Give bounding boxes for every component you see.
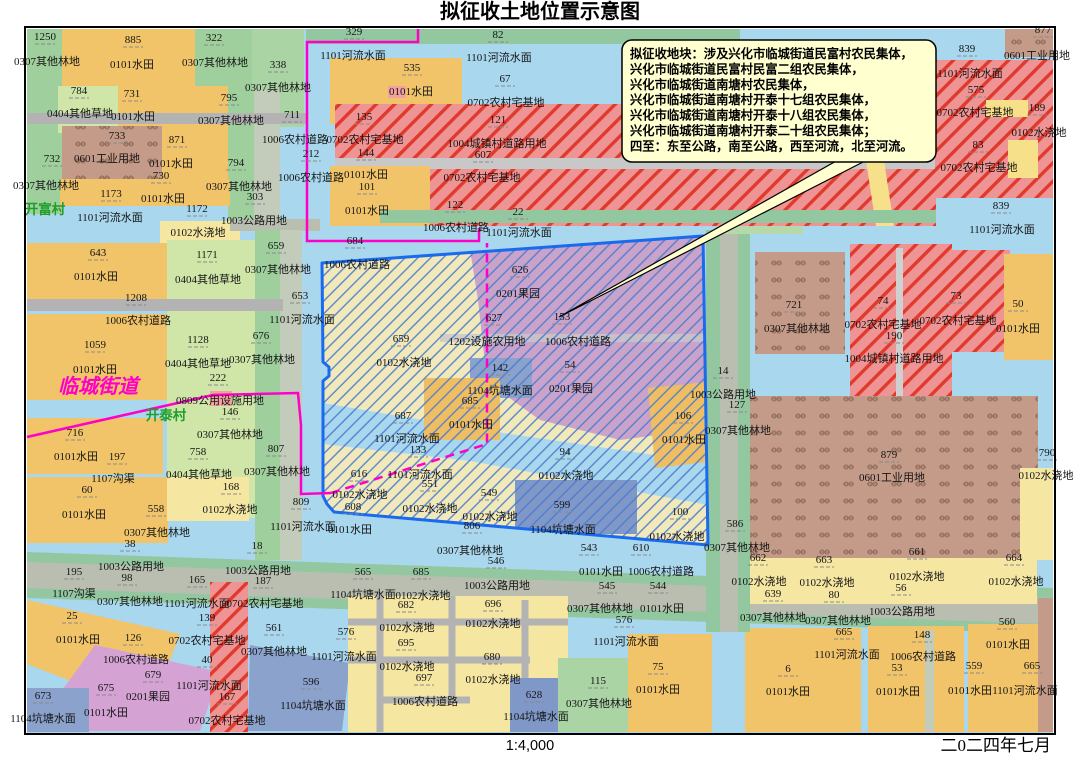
parcel-number-label: 790 [1039, 447, 1056, 459]
parcel-number-label: 559 [966, 660, 983, 672]
land-use-label: 0307其他林地 [182, 55, 248, 69]
land-use-label: 1006农村道路 [890, 649, 956, 663]
parcel-number-label: 610 [633, 542, 650, 554]
parcel-number-label: 676 [253, 330, 270, 342]
land-use-label: 0101水田 [389, 85, 433, 98]
parcel-number-label: 83 [973, 139, 985, 151]
land-use-label: 1003公路用地 [464, 579, 530, 592]
parcel-number-label: 561 [266, 622, 283, 634]
land-use-label: 1101河流水面 [374, 431, 440, 445]
parcel-number-label: 53 [892, 662, 904, 674]
parcel-number-label: 679 [145, 669, 162, 681]
land-use-label: 0307其他林地 [13, 178, 79, 192]
parcel-number-label: 144 [358, 147, 375, 159]
land-use-label: 0101水田 [766, 685, 810, 698]
land-acquisition-map: 12500307其他林地8850101水田3220307其他林地3380307其… [0, 0, 1080, 759]
land-use-label: 0702农村宅基地 [468, 95, 545, 109]
parcel-number-label: 303 [247, 191, 264, 203]
land-use-label: 0404其他草地 [165, 357, 231, 370]
parcel-number-label: 794 [228, 157, 245, 169]
land-use-label: 1101河流水面 [311, 649, 377, 663]
parcel-number-label: 50 [1013, 298, 1025, 310]
parcel-number-label: 25 [67, 610, 79, 622]
parcel-number-label: 1250 [34, 31, 57, 43]
parcel-number-label: 879 [881, 449, 898, 461]
land-use-label: 1101河流水面 [77, 210, 143, 224]
callout-line: 兴化市临城街道南塘村开泰十八组农民集体， [630, 108, 876, 123]
land-use-label: 0702农村宅基地 [920, 313, 997, 327]
parcel-number-label: 639 [765, 588, 782, 600]
parcel-number-label: 627 [486, 312, 503, 324]
parcel-number-label: 74 [878, 295, 890, 307]
callout-line: 兴化市临城街道南塘村开泰十七组农民集体， [630, 92, 876, 107]
land-use-label: 0404其他草地 [47, 107, 113, 120]
land-use-label: 0404其他草地 [166, 468, 232, 481]
land-use-label: 0102水浇地 [377, 356, 432, 369]
land-use-label: 0101水田 [345, 204, 389, 217]
parcel-number-label: 75 [653, 661, 665, 673]
land-use-label: 0307其他林地 [567, 601, 633, 615]
parcel-number-label: 673 [35, 690, 52, 702]
parcel-number-label: 54 [565, 359, 577, 371]
parcel-number-label: 22 [513, 206, 524, 218]
parcel-number-label: 675 [98, 682, 115, 694]
land-use-label: 0102水浇地 [466, 673, 521, 686]
parcel-number-label: 664 [1006, 552, 1023, 564]
land-use-label: 0102水浇地 [800, 576, 855, 589]
land-use-label: 1101河流水面 [486, 225, 552, 239]
parcel-number-label: 135 [356, 111, 373, 123]
land-use-label: 0702农村宅基地 [227, 596, 304, 610]
parcel-number-label: 126 [125, 632, 142, 644]
land-use-label: 0102水浇地 [989, 575, 1044, 588]
parcel-number-label: 795 [221, 92, 238, 104]
parcel-number-label: 14 [718, 365, 730, 377]
parcel-number-label: 338 [270, 59, 287, 71]
land-use-label: 0307其他林地 [97, 594, 163, 608]
parcel-number-label: 187 [255, 575, 272, 587]
land-use-label: 1101河流水面 [466, 50, 532, 64]
parcel-number-label: 730 [153, 170, 170, 182]
parcel-number-label: 1172 [186, 203, 208, 215]
parcel-number-label: 127 [729, 399, 746, 411]
land-use-label: 0102水浇地 [403, 502, 458, 515]
parcel-number-label: 659 [268, 240, 285, 252]
parcel-number-label: 685 [413, 566, 430, 578]
parcel-number-label: 626 [512, 264, 529, 276]
land-use-label: 0601工业用地 [74, 152, 140, 165]
land-use-label: 1101河流水面 [992, 683, 1058, 697]
land-use-label: 0101水田 [110, 58, 154, 71]
parcel-number-label: 106 [675, 410, 692, 422]
land-use-label: 0307其他林地 [705, 423, 771, 437]
land-use-label: 1104坑塘水面 [530, 522, 596, 536]
callout-line: 兴化市临城街道南塘村农民集体， [630, 77, 814, 92]
land-use-label: 1006农村道路 [262, 132, 328, 146]
parcel-number-label: 576 [338, 626, 355, 638]
land-use-label: 1101河流水面 [164, 596, 230, 610]
land-use-label: 0201果园 [126, 690, 170, 703]
parcel-number-label: 643 [90, 247, 107, 259]
parcel-number-label: 784 [71, 85, 88, 97]
parcel-number-label: 665 [836, 626, 853, 638]
land-use-label: 0101水田 [449, 418, 493, 431]
land-use-label: 1104坑塘水面 [280, 698, 346, 712]
parcel-number-label: 663 [816, 554, 833, 566]
land-use-label: 0101水田 [948, 684, 992, 697]
parcel-number-label: 607 [475, 149, 492, 161]
parcel-number-label: 38 [125, 538, 137, 550]
land-use-label: 0702农村宅基地 [327, 132, 404, 146]
land-use-label: 1004城镇村道路用地 [448, 136, 547, 150]
land-use-label: 1003公路用地 [690, 388, 756, 401]
land-use-label: 0702农村宅基地 [845, 317, 922, 331]
parcel-number-label: 543 [581, 542, 598, 554]
parcel-number-label: 809 [293, 496, 310, 508]
land-use-label: 1006农村道路 [278, 170, 344, 184]
parcel-number-label: 67 [500, 73, 512, 85]
land-use-label: 0102水浇地 [333, 488, 388, 501]
parcel-number-label: 807 [268, 443, 285, 455]
land-use-label: 1101河流水面 [593, 634, 659, 648]
parcel-number-label: 1128 [187, 334, 209, 346]
parcel-number-label: 685 [462, 395, 479, 407]
land-use-label: 0307其他林地 [245, 80, 311, 94]
parcel-number-label: 115 [590, 675, 607, 687]
land-use-label: 1101河流水面 [969, 222, 1035, 236]
land-use-label: 0102水浇地 [1019, 469, 1074, 482]
parcel-number-label: 596 [303, 676, 320, 688]
parcel-number-label: 575 [968, 84, 985, 96]
land-use-label: 1104坑塘水面 [330, 587, 396, 601]
land-use-label: 1004城镇村道路用地 [845, 351, 944, 365]
parcel-number-label: 133 [410, 444, 427, 456]
parcel-number-label: 716 [67, 427, 84, 439]
land-use-label: 0102水浇地 [380, 621, 435, 634]
village-label: 开泰村 [146, 407, 187, 423]
parcel-number-label: 680 [484, 651, 501, 663]
land-use-label: 0101水田 [876, 685, 920, 698]
land-use-label: 0101水田 [73, 363, 117, 376]
land-use-label: 0101水田 [62, 508, 106, 521]
land-use-label: 0601工业用地 [859, 471, 925, 484]
callout-line: 兴化市临城街道南塘村开泰二十组农民集体； [630, 123, 876, 138]
land-use-label: 0702农村宅基地 [189, 713, 266, 727]
land-use-label: 0702农村宅基地 [169, 633, 246, 647]
parcel-number-label: 586 [727, 518, 744, 530]
parcel-number-label: 165 [189, 574, 206, 586]
land-use-label: 0307其他林地 [764, 321, 830, 335]
parcel-number-label: 222 [210, 372, 227, 384]
land-use-label: 1003公路用地 [869, 605, 935, 618]
land-use-label: 1101河流水面 [269, 312, 335, 326]
land-use-label: 0307其他林地 [241, 644, 307, 658]
land-use-label: 0702农村宅基地 [937, 105, 1014, 119]
land-use-label: 0404其他草地 [175, 273, 241, 286]
land-use-label: 1101河流水面 [270, 519, 336, 533]
parcel-number-label: 40 [202, 654, 214, 666]
parcel-number-label: 322 [206, 32, 223, 44]
parcel-number-label: 168 [223, 481, 240, 493]
land-use-label: 1006农村道路 [545, 334, 611, 348]
land-use-label: 0307其他林地 [740, 610, 806, 624]
land-use-label: 0102水浇地 [466, 617, 521, 630]
parcel-number-label: 82 [493, 29, 504, 41]
land-use-label: 1006农村道路 [392, 694, 458, 708]
map-page: 12500307其他林地8850101水田3220307其他林地3380307其… [0, 0, 1080, 759]
land-use-label: 0307其他林地 [124, 525, 190, 539]
land-use-label: 1003公路用地 [221, 214, 287, 227]
callout-line: 兴化市临城街道民富村民富二组农民集体， [630, 61, 864, 76]
parcel-number-label: 661 [909, 546, 926, 558]
parcel-number-label: 659 [393, 333, 410, 345]
parcel-number-label: 1208 [125, 292, 148, 304]
land-use-label: 1006农村道路 [628, 564, 694, 578]
parcel-number-label: 1171 [196, 249, 218, 261]
callout-line: 拟征收地块：涉及兴化市临城街道民富村农民集体， [630, 46, 913, 61]
land-use-label: 0601工业用地 [1004, 49, 1070, 62]
parcel-number-label: 551 [422, 478, 439, 490]
parcel-number-label: 721 [786, 299, 803, 311]
land-use-label: 0102水浇地 [732, 575, 787, 588]
parcel-number-label: 733 [109, 130, 126, 142]
parcel-number-label: 695 [398, 637, 415, 649]
land-use-label: 0102水浇地 [203, 503, 258, 516]
parcel-number-label: 565 [355, 566, 372, 578]
land-use-label: 0307其他林地 [197, 427, 263, 441]
parcel-number-label: 758 [190, 446, 207, 458]
land-use-label: 0702农村宅基地 [941, 160, 1018, 174]
parcel-number-label: 142 [492, 362, 509, 374]
parcel-number-label: 732 [44, 153, 61, 165]
land-use-label: 0201果园 [549, 382, 593, 395]
parcel-number-label: 731 [124, 88, 141, 100]
land-use-label: 0102水浇地 [650, 530, 705, 543]
date-label: 二0二四年七月 [941, 736, 1052, 755]
land-use-label: 0809公用设施用地 [176, 394, 264, 407]
land-use-label: 1006农村道路 [423, 220, 489, 234]
land-use-label: 0307其他林地 [566, 696, 632, 710]
land-use-label: 0101水田 [996, 322, 1040, 335]
parcel-number-label: 80 [829, 589, 841, 601]
parcel-number-label: 6 [785, 663, 791, 675]
land-use-label: 1104坑塘水面 [503, 709, 569, 723]
parcel-number-label: 682 [398, 599, 415, 611]
land-use-label: 0101水田 [56, 633, 100, 646]
land-use-label: 1107沟渠 [52, 587, 96, 600]
land-use-label: 0307其他林地 [244, 464, 310, 478]
parcel-number-label: 60 [82, 484, 94, 496]
parcel-number-label: 549 [481, 487, 498, 499]
parcel-number-label: 697 [416, 672, 433, 684]
parcel-number-label: 98 [122, 572, 134, 584]
parcel-number-label: 535 [404, 62, 421, 74]
parcel-number-label: 146 [222, 406, 239, 418]
parcel-number-label: 1173 [100, 188, 122, 200]
parcel-number-label: 839 [993, 200, 1010, 212]
parcel-number-label: 100 [672, 506, 689, 518]
land-use-label: 0101水田 [986, 638, 1030, 651]
parcel-number-label: 696 [485, 598, 502, 610]
land-use-label: 0101水田 [328, 523, 372, 536]
parcel-number-label: 599 [554, 499, 571, 511]
land-use-label: 0102水浇地 [539, 469, 594, 482]
parcel-number-label: 608 [345, 501, 362, 513]
parcel-number-label: 877 [1035, 24, 1052, 36]
land-use-label: 1107沟渠 [91, 472, 135, 485]
scale-label: 1:4,000 [506, 738, 554, 754]
land-use-label: 0101水田 [662, 433, 706, 446]
parcel-number-label: 653 [292, 290, 309, 302]
parcel-number-label: 560 [999, 616, 1016, 628]
parcel-number-label: 616 [351, 468, 368, 480]
parcel-number-label: 885 [125, 34, 142, 46]
parcel-number-label: 1059 [84, 339, 107, 351]
land-use-label: 0101水田 [111, 110, 155, 123]
land-use-label: 0307其他林地 [229, 352, 295, 366]
parcel-number-label: 711 [284, 109, 300, 121]
land-use-label: 1104坑塘水面 [10, 711, 76, 725]
land-use-label: 0101水田 [636, 683, 680, 696]
parcel-number-label: 212 [303, 148, 320, 160]
land-use-label: 0101水田 [579, 565, 623, 578]
parcel-number-label: 18 [252, 540, 264, 552]
land-use-label: 0307其他林地 [245, 262, 311, 276]
parcel-number-label: 121 [490, 114, 507, 126]
land-use-label: 0101水田 [344, 168, 388, 181]
land-use-label: 0702农村宅基地 [444, 170, 521, 184]
parcel-number-label: 628 [526, 689, 543, 701]
land-use-label: 0101水田 [84, 706, 128, 719]
village-label: 开富村 [25, 201, 66, 217]
parcel-number-label: 139 [199, 612, 216, 624]
land-use-label: 0101水田 [149, 157, 193, 170]
parcel-number-label: 190 [886, 330, 903, 342]
parcel-number-label: 197 [109, 451, 126, 463]
land-use-label: 0102水浇地 [171, 226, 226, 239]
parcel-number-label: 101 [359, 181, 376, 193]
land-use-label: 0201果园 [496, 287, 540, 300]
land-use-label: 1006农村道路 [103, 652, 169, 666]
land-use-label: 1202设施农用地 [449, 334, 526, 348]
land-use-label: 1101河流水面 [937, 66, 1003, 80]
parcel-number-label: 576 [616, 614, 633, 626]
parcel-number-label: 665 [1024, 660, 1041, 672]
parcel-number-label: 167 [219, 691, 236, 703]
land-use-label: 0101水田 [54, 450, 98, 463]
parcel-number-label: 94 [560, 446, 572, 458]
land-use-label: 1101河流水面 [320, 48, 386, 62]
parcel-number-label: 122 [447, 199, 464, 211]
parcel-number-label: 148 [914, 629, 931, 641]
land-use-label: 0101水田 [74, 270, 118, 283]
parcel-number-label: 662 [750, 552, 767, 564]
land-use-label: 0101水田 [640, 602, 684, 615]
parcel-number-label: 73 [951, 290, 963, 302]
land-use-label: 0307其他林地 [805, 613, 871, 627]
land-use-label: 0102水浇地 [1012, 126, 1067, 139]
parcel-number-label: 806 [464, 520, 481, 532]
parcel-number-label: 195 [66, 566, 83, 578]
land-use-label: 1006农村道路 [105, 313, 171, 327]
parcel-number-label: 558 [148, 503, 165, 515]
land-use-label: 0101水田 [141, 192, 185, 205]
parcel-number-label: 684 [347, 235, 364, 247]
callout-line: 四至：东至公路，南至公路，西至河流，北至河流。 [630, 138, 913, 153]
parcel-number-label: 687 [395, 410, 412, 422]
land-use-label: 1101河流水面 [814, 647, 880, 661]
parcel-number-label: 545 [599, 580, 616, 592]
land-use-label: 1101河流水面 [387, 467, 453, 481]
parcel-number-label: 839 [959, 43, 976, 55]
parcel-number-label: 546 [488, 555, 505, 567]
district-label: 临城街道 [58, 375, 141, 398]
land-use-label: 1006农村道路 [324, 257, 390, 271]
parcel-number-label: 544 [650, 580, 667, 592]
land-use-label: 0307其他林地 [198, 113, 264, 127]
parcel-number-label: 189 [1029, 102, 1046, 114]
page-title: 拟征收土地位置示意图 [440, 0, 640, 23]
land-use-label: 1101河流水面 [176, 678, 242, 692]
land-use-label: 0307其他林地 [14, 54, 80, 68]
parcel-number-label: 56 [896, 582, 908, 594]
parcel-number-label: 871 [169, 134, 186, 146]
